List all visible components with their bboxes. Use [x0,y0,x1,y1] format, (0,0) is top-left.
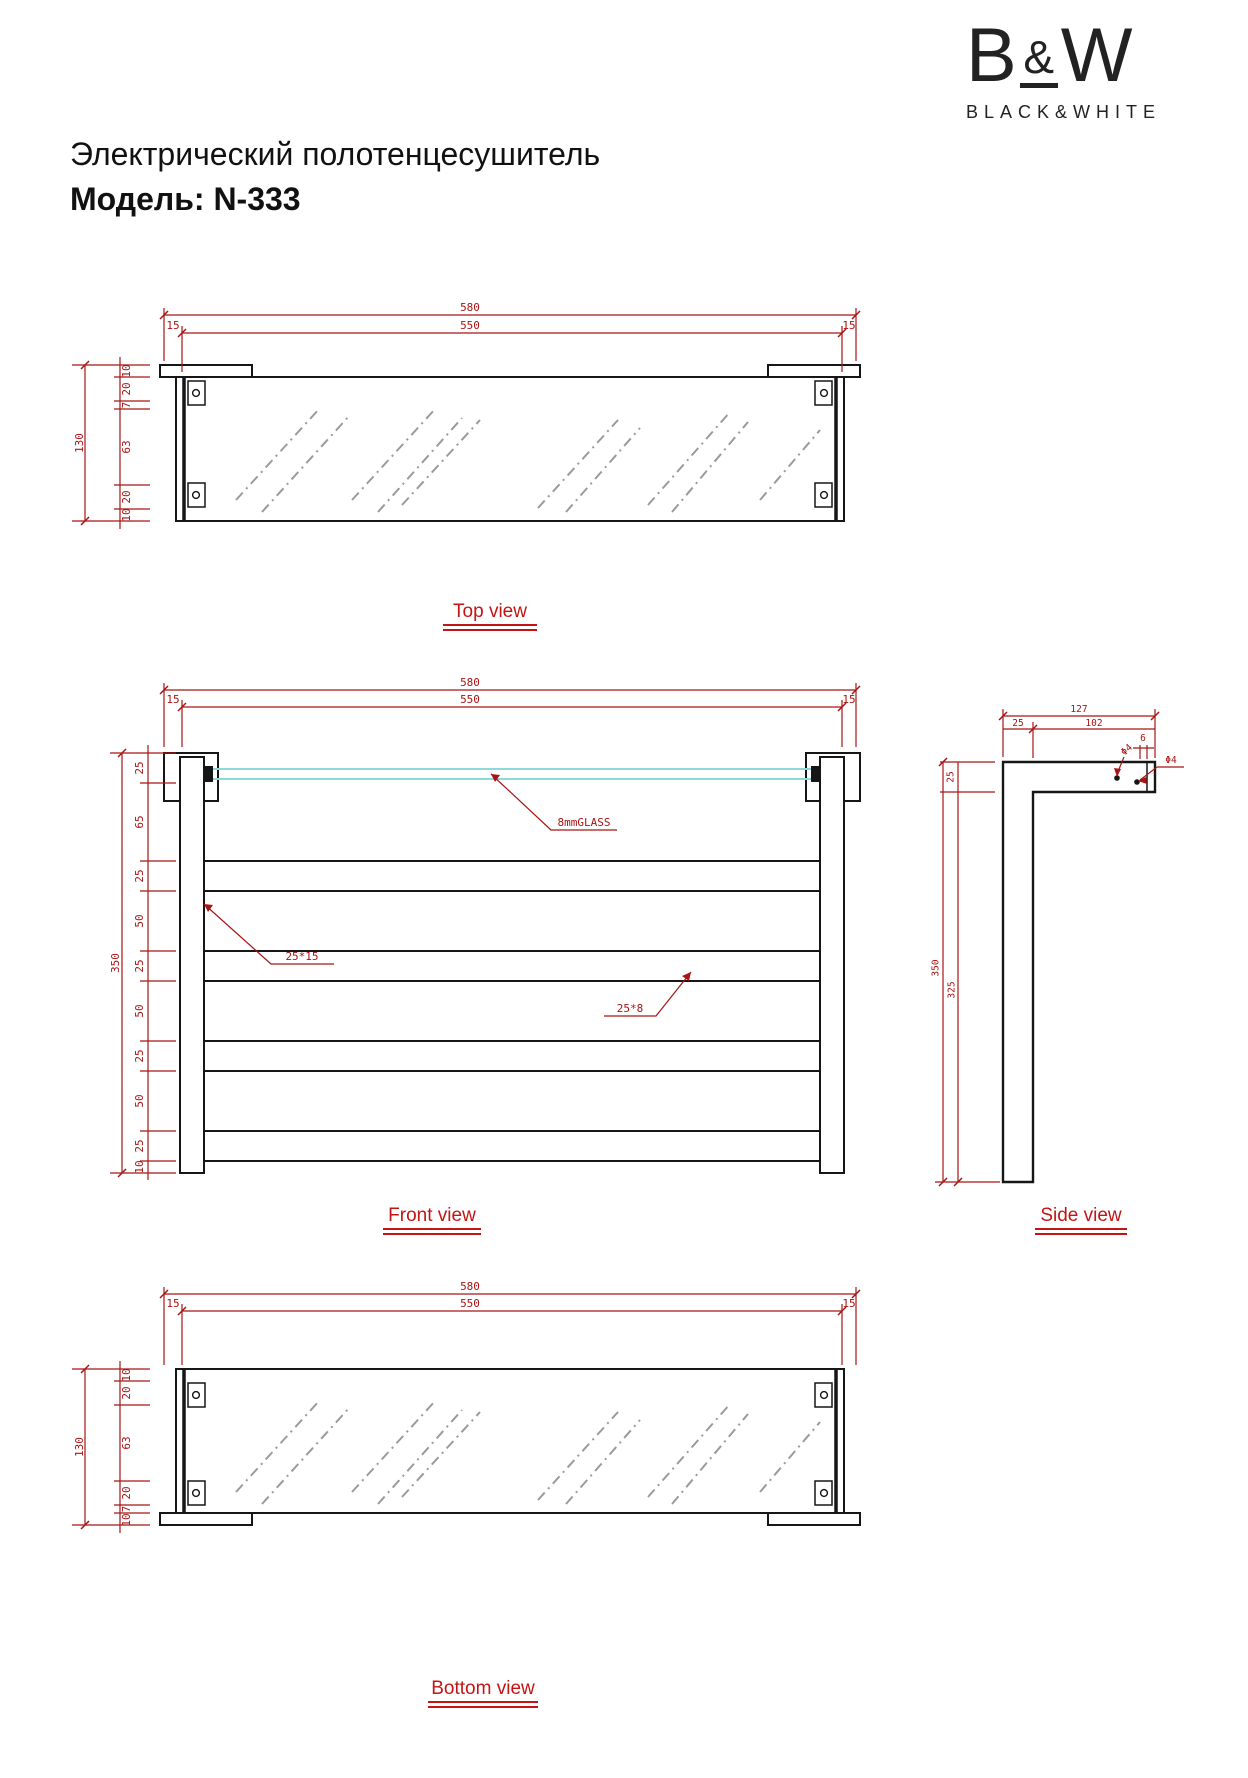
bottom-chain-63: 63 [120,1436,133,1449]
front-chain-25a: 25 [133,761,146,774]
top-chain-63: 63 [120,440,133,453]
side-view-label: Side view [1040,1205,1122,1226]
top-dim-580: 580 [460,301,480,314]
top-view-screw-plates [188,381,832,507]
bottom-chain-20b: 20 [120,1486,133,1499]
bottom-view-glass-hatch [236,1400,820,1504]
front-dim-550: 550 [460,693,480,706]
front-chain-50a: 50 [133,914,146,927]
side-dim-102: 102 [1085,718,1102,729]
side-hole-front [1134,779,1140,785]
top-dim-15-left: 15 [166,319,179,332]
front-view-rails [204,861,820,1161]
side-dim-6: 6 [1140,733,1146,744]
side-dim-127: 127 [1070,704,1087,715]
top-chain-20a: 20 [120,382,133,395]
bottom-view-screw-plates [188,1383,832,1505]
bottom-dim-130: 130 [73,1437,86,1457]
front-chain-65: 65 [133,815,146,828]
bottom-dim-550: 550 [460,1297,480,1310]
front-chain-25c: 25 [133,959,146,972]
bottom-dim-15-left: 15 [166,1297,179,1310]
front-dim-15-right: 15 [842,693,855,706]
front-view-geometry [164,753,860,1173]
front-chain-50b: 50 [133,1004,146,1017]
bottom-chain-10b: 10 [120,1513,133,1526]
front-annotation-post: 25*15 [204,904,334,964]
bottom-view-label: Bottom view [431,1678,535,1699]
top-dim-130: 130 [73,433,86,453]
top-chain-20b: 20 [120,490,133,503]
top-view-geometry [160,365,860,521]
front-view-label: Front view [388,1205,476,1226]
top-dim-550: 550 [460,319,480,332]
front-chain-50c: 50 [133,1094,146,1107]
bottom-view-geometry [160,1369,860,1525]
side-dim-350: 350 [931,959,942,976]
side-dim-25-top: 25 [1012,718,1023,729]
bottom-dim-580: 580 [460,1280,480,1293]
top-view-glass-hatch [236,408,820,512]
side-phi4-top-label: Φ4 [1119,742,1135,758]
top-chain-10b: 10 [120,508,133,521]
top-chain-10a: 10 [120,364,133,377]
bottom-dim-15-right: 15 [842,1297,855,1310]
front-dim-15-left: 15 [166,693,179,706]
front-annotation-glass: 8mmGLASS [491,774,617,830]
front-dim-580: 580 [460,676,480,689]
front-view-dimensions: 580 550 15 15 25 [109,676,860,1180]
bottom-chain-7: 7 [120,1506,133,1513]
side-dim-325: 325 [947,981,958,998]
front-chain-25e: 25 [133,1139,146,1152]
front-annotation-rail: 25*8 [604,972,691,1016]
front-chain-25d: 25 [133,1049,146,1062]
top-view-label: Top view [453,601,527,622]
top-view-label-underline [443,625,537,630]
technical-drawing: 580 550 15 15 10 20 7 63 20 [0,0,1248,1778]
front-chain-10: 10 [133,1160,146,1173]
front-view-label-underline [383,1229,481,1234]
front-view-glass [204,766,820,782]
front-dim-350: 350 [109,953,122,973]
bottom-chain-10a: 10 [120,1368,133,1381]
rail-profile-label: 25*8 [617,1002,644,1015]
datasheet-page: B & W BLACK&WHITE Электрический полотенц… [0,0,1248,1778]
top-dim-15-right: 15 [842,319,855,332]
side-view-geometry [1003,762,1155,1182]
front-chain-25b: 25 [133,869,146,882]
side-dim-lip: 6 [1133,733,1154,759]
glass-note-label: 8mmGLASS [558,816,611,829]
side-dim-25-arm: 25 [946,771,957,782]
post-profile-label: 25*15 [285,950,318,963]
bottom-chain-20a: 20 [120,1386,133,1399]
top-chain-7: 7 [120,402,133,409]
bottom-view-label-underline [428,1702,538,1707]
side-view-label-underline [1035,1229,1127,1234]
side-phi4-front-label: Φ4 [1165,755,1177,766]
